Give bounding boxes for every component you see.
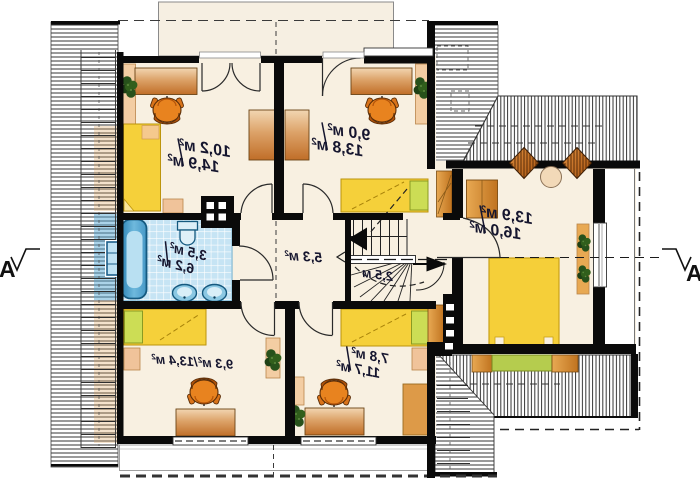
svg-text:A: A bbox=[686, 260, 700, 286]
svg-text:A: A bbox=[0, 256, 16, 282]
svg-text:5,3 м2: 5,3 м2 bbox=[283, 247, 323, 266]
